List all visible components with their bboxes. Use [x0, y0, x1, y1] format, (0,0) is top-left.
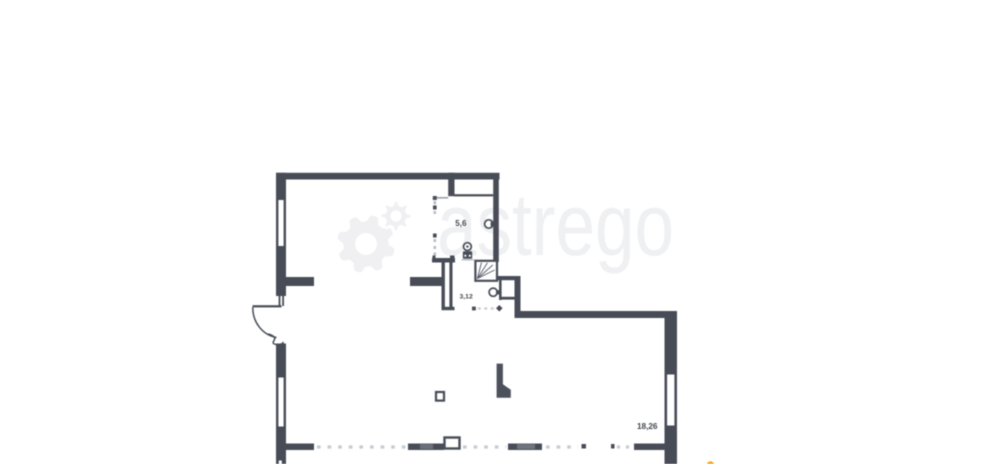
svg-text:18,26: 18,26: [637, 422, 658, 431]
svg-text:3,12: 3,12: [460, 293, 473, 300]
svg-text:5,6: 5,6: [455, 219, 467, 228]
